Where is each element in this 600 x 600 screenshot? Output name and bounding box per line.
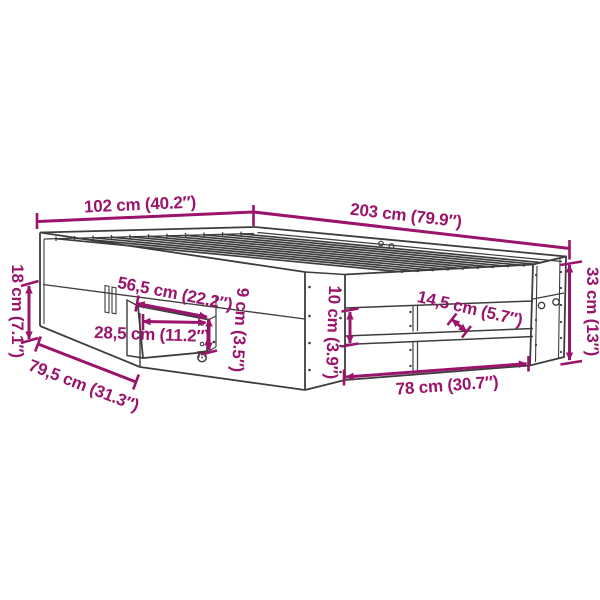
dim-drawer-width-label: 28,5 cm (11.2″) xyxy=(94,323,210,346)
dim-drawer-extension: 56,5 cm (22.2″) xyxy=(116,273,234,317)
dim-drawer-extension-label: 56,5 cm (22.2″) xyxy=(116,273,234,314)
dim-drawer-width: 28,5 cm (11.2″) xyxy=(94,314,210,346)
dim-shelf-gap-label: 14,5 cm (5.7″) xyxy=(416,287,525,330)
foot-screw-dots xyxy=(535,271,562,353)
bed-frame-dimension-diagram: 102 cm (40.2″) 203 cm (79.9″) 18 cm (7.1… xyxy=(0,0,600,600)
dim-length-top-label: 203 cm (79.9″) xyxy=(349,200,463,232)
dim-head-lower-height-label: 18 cm (7.1″) xyxy=(8,264,27,358)
dim-drawer-depth-label: 79,5 cm (31.3″) xyxy=(26,356,142,416)
dim-rail-gap-label: 10 cm (3.9″) xyxy=(322,285,344,379)
dim-width-top: 102 cm (40.2″) xyxy=(37,193,254,229)
dim-side-height-label: 33 cm (13″) xyxy=(583,267,600,356)
diagram-canvas: 102 cm (40.2″) 203 cm (79.9″) 18 cm (7.1… xyxy=(0,0,600,600)
dim-head-lower-height: 18 cm (7.1″) xyxy=(8,264,39,358)
dim-drawer-depth: 79,5 cm (31.3″) xyxy=(26,337,142,416)
dim-width-top-label: 102 cm (40.2″) xyxy=(84,193,197,217)
dim-rail-gap: 10 cm (3.9″) xyxy=(322,285,359,379)
foot-panel xyxy=(530,257,566,366)
dim-shelf-width-label: 78 cm (30.7″) xyxy=(395,372,499,398)
